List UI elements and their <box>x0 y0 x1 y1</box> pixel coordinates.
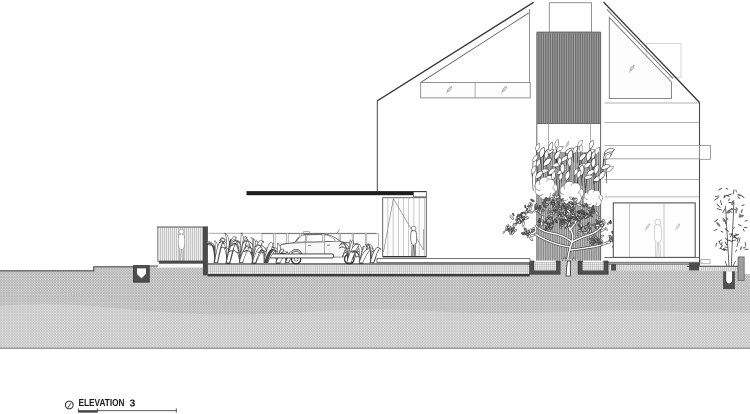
svg-text:ELEVATION: ELEVATION <box>79 397 125 409</box>
svg-text:3: 3 <box>130 398 136 410</box>
